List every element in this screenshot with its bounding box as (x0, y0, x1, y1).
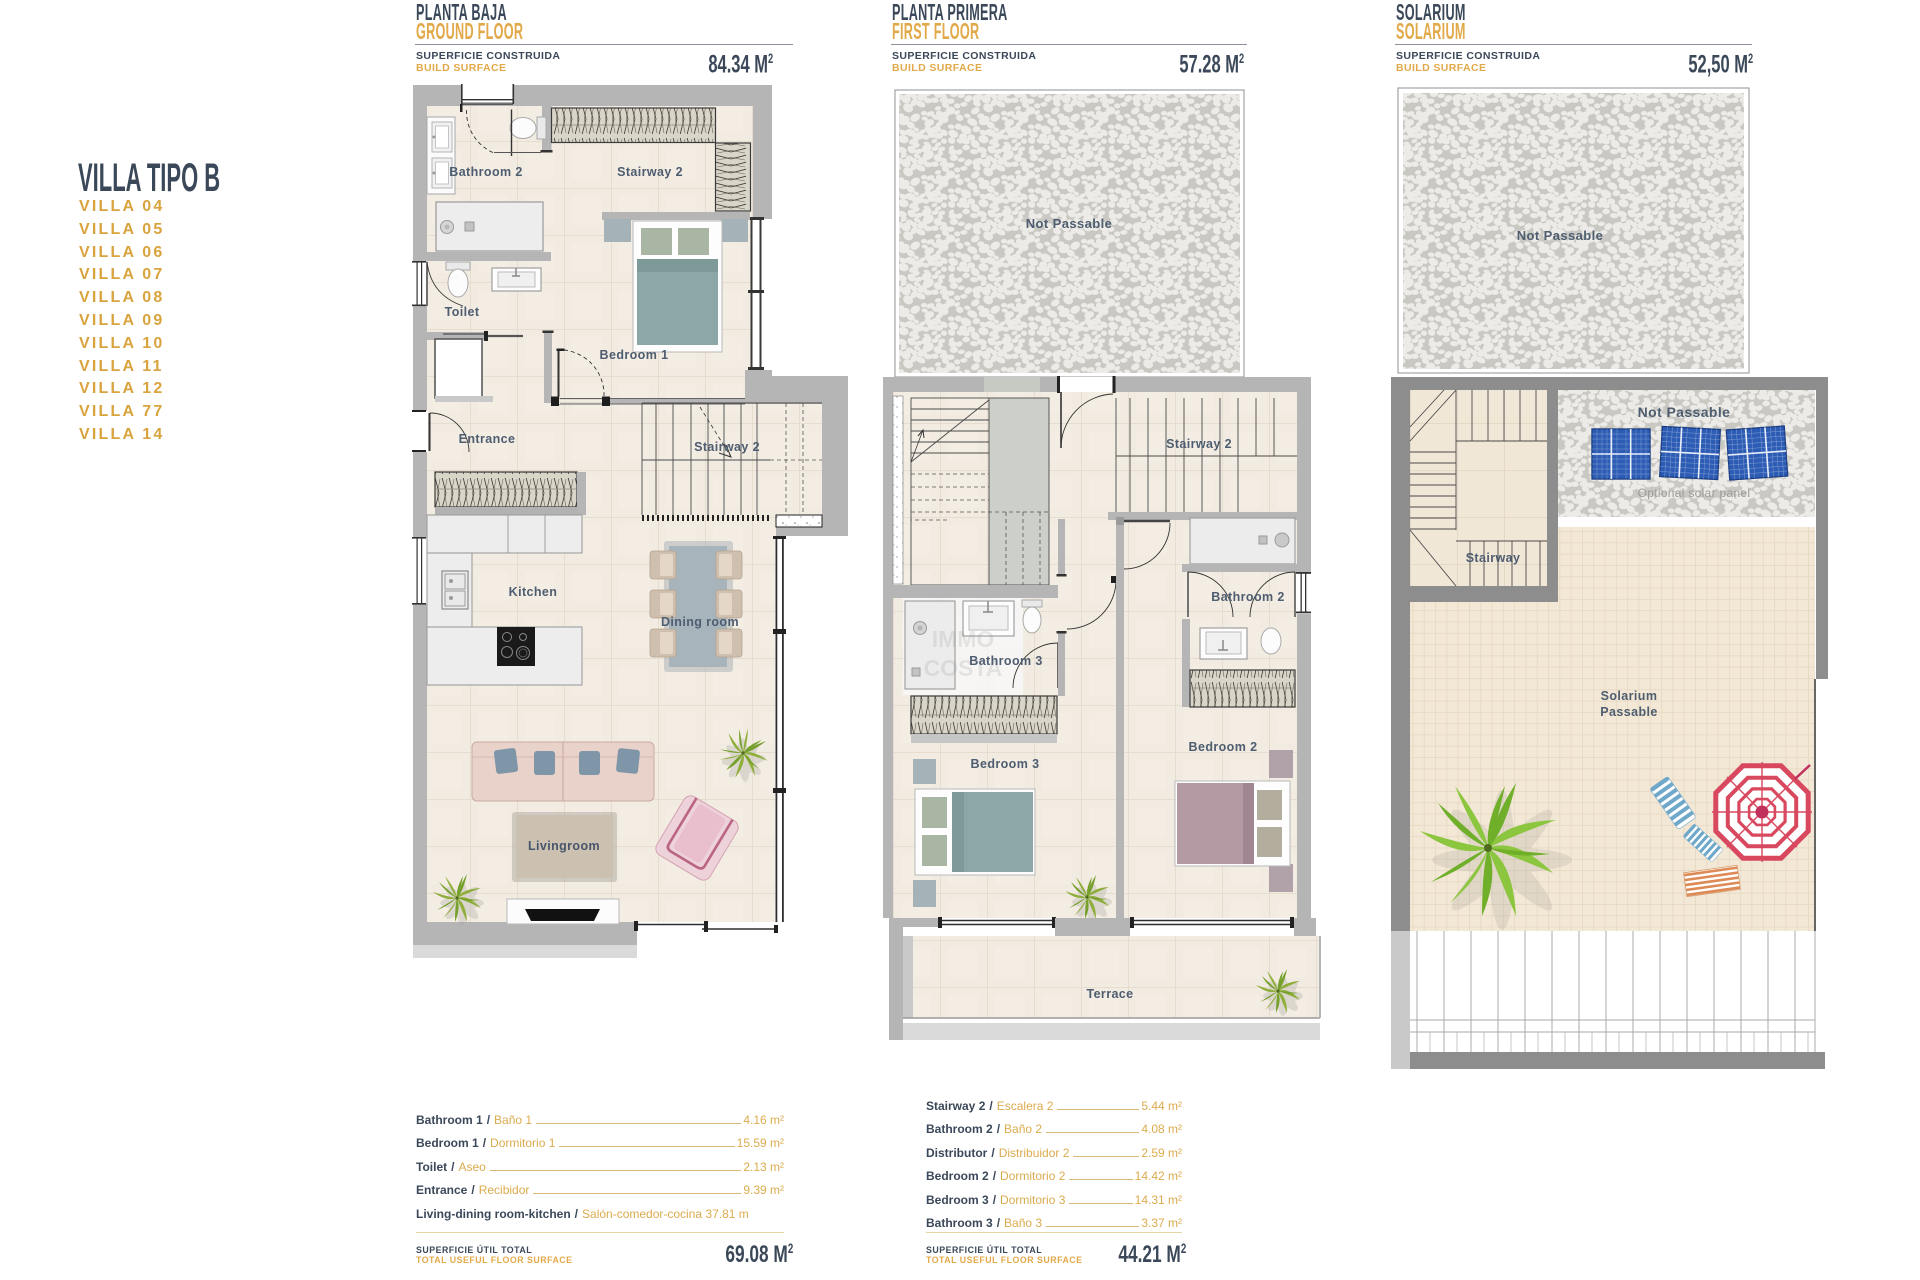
svg-text:Optional solar panel: Optional solar panel (1638, 486, 1751, 500)
svg-text:Bathroom 2: Bathroom 2 (1211, 590, 1284, 604)
svg-text:Stairway 2: Stairway 2 (617, 165, 683, 179)
svg-text:Not Passable: Not Passable (1517, 228, 1603, 243)
svg-text:Terrace: Terrace (1086, 987, 1133, 1001)
svg-text:Not Passable: Not Passable (1026, 216, 1112, 231)
svg-text:Not Passable: Not Passable (1638, 404, 1731, 420)
svg-text:Bedroom 3: Bedroom 3 (971, 757, 1040, 771)
svg-text:Entrance: Entrance (459, 432, 516, 446)
svg-text:Passable: Passable (1600, 705, 1657, 719)
svg-text:Kitchen: Kitchen (509, 585, 558, 599)
svg-text:Toilet: Toilet (445, 305, 480, 319)
svg-text:Stairway 2: Stairway 2 (1166, 437, 1232, 451)
svg-text:Bedroom 1: Bedroom 1 (600, 348, 669, 362)
svg-text:Solarium: Solarium (1601, 689, 1658, 703)
svg-text:Dining room: Dining room (661, 615, 739, 629)
svg-text:IMMO: IMMO (932, 626, 995, 652)
svg-text:Bathroom 2: Bathroom 2 (449, 165, 522, 179)
svg-text:Bathroom 3: Bathroom 3 (969, 654, 1042, 668)
svg-text:Livingroom: Livingroom (528, 839, 600, 853)
svg-text:Stairway: Stairway (1466, 551, 1521, 565)
svg-text:Bedroom 2: Bedroom 2 (1189, 740, 1258, 754)
svg-text:Stairway 2: Stairway 2 (694, 440, 760, 454)
